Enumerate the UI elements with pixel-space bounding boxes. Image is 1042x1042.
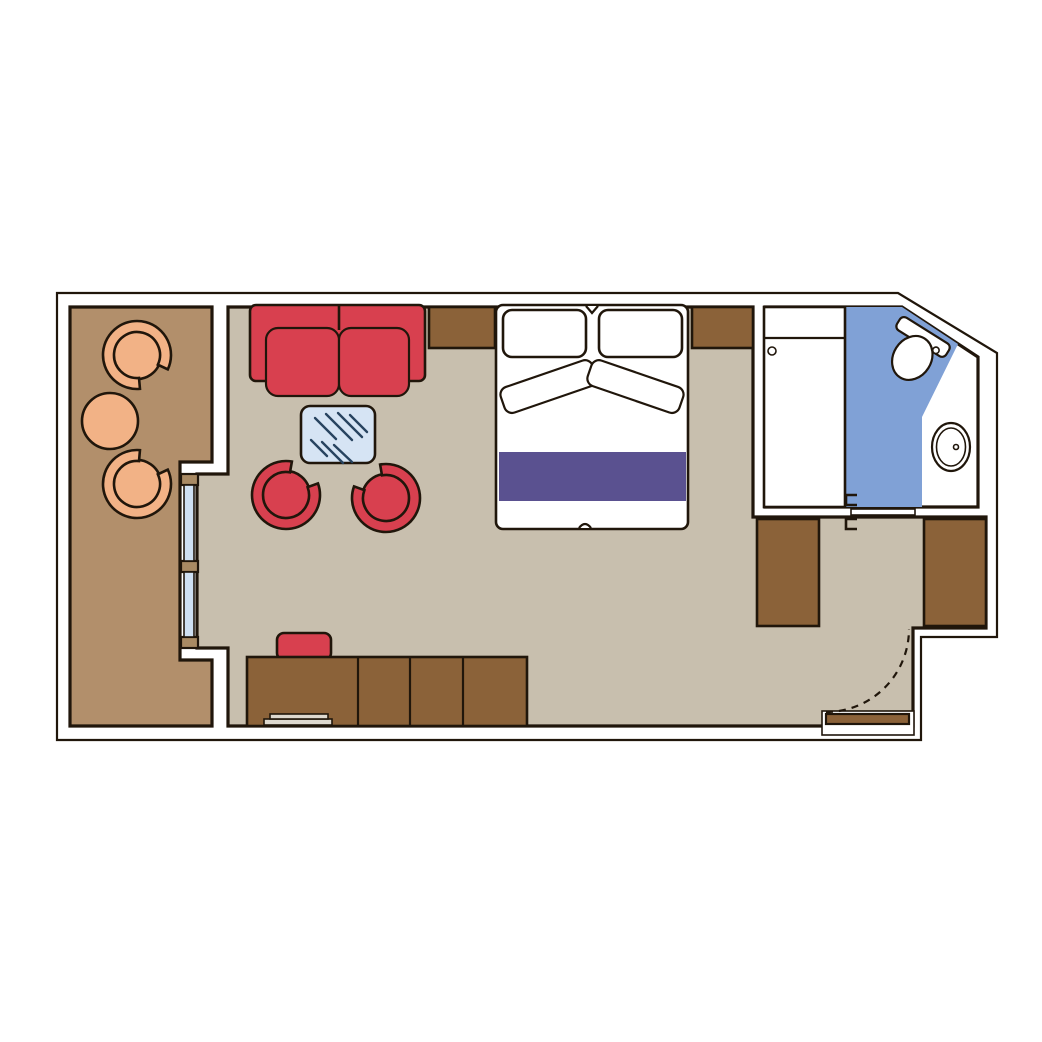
balcony-round-table (82, 393, 138, 449)
desk-tray-top (270, 714, 328, 719)
desk-tray-base (264, 719, 332, 725)
washbasin (932, 423, 970, 471)
glass-coffee-table (301, 406, 375, 463)
wardrobe-right (924, 519, 986, 626)
door-frame-cap-bottom (181, 637, 198, 648)
pillow-right (599, 310, 682, 357)
shower-door-knob (768, 347, 776, 355)
floorplan-canvas (0, 0, 1042, 1042)
floorplan-diagram (0, 0, 1042, 1042)
glass-pane-bottom (184, 572, 194, 637)
washbasin-outer (932, 423, 970, 471)
double-bed (496, 305, 688, 529)
bed-runner (499, 452, 686, 501)
sofa-cushion-left (266, 328, 339, 396)
nightstand-left (429, 307, 495, 348)
bed-bottom-notch (579, 524, 591, 528)
shower-cabinet (764, 307, 845, 507)
nightstand-right (692, 307, 753, 348)
door-frame-cap-middle (181, 561, 198, 572)
glass-pane-top (184, 485, 194, 561)
pillow-left (503, 310, 586, 357)
sofa (250, 305, 425, 396)
bathroom-door-panel (851, 509, 915, 515)
door-frame-cap-top (181, 474, 198, 485)
washbasin-drain (954, 445, 959, 450)
entrance-door (826, 714, 909, 724)
wardrobe-left (757, 519, 819, 626)
sofa-cushion-right (339, 328, 409, 396)
